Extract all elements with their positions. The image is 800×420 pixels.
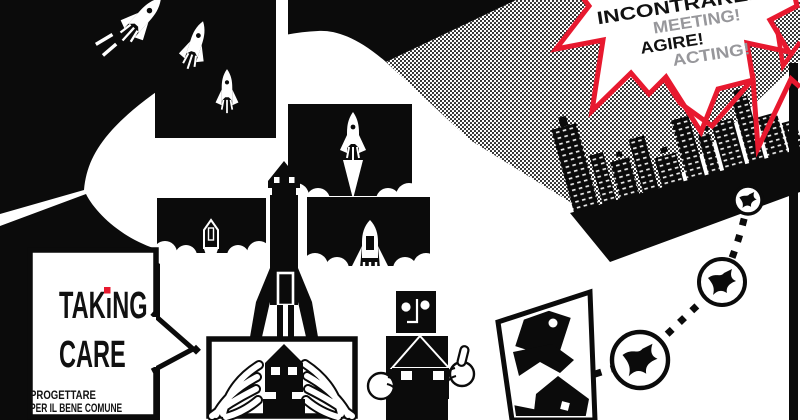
bird-badge-icon [612,332,668,388]
worried-house-figure-icon [191,339,355,417]
taking-care-poster: INCONTRARE! MEETING! AGIRE! ACTING! TAKı… [0,0,800,420]
logo-i-dot [104,287,111,294]
launch-panel-icon [302,197,439,281]
poster-canvas: INCONTRARE! MEETING! AGIRE! ACTING! TAKı… [0,0,800,420]
launch-panel-icon [153,198,271,270]
panel-a-gap [276,0,288,44]
logo-tagline-1: PROGETTARE [30,389,96,402]
bird-badge-icon [699,259,745,305]
bird-badge-icon [734,186,762,214]
launch-panel-icon [155,0,276,138]
logo-word-1: TAKıNG [59,283,148,326]
logo-tagline-2: PER IL BENE COMUNE [30,403,122,416]
right-edge-bar [789,63,798,420]
logo-word-2: CARE [59,332,126,375]
launch-panel-icon [283,104,422,212]
